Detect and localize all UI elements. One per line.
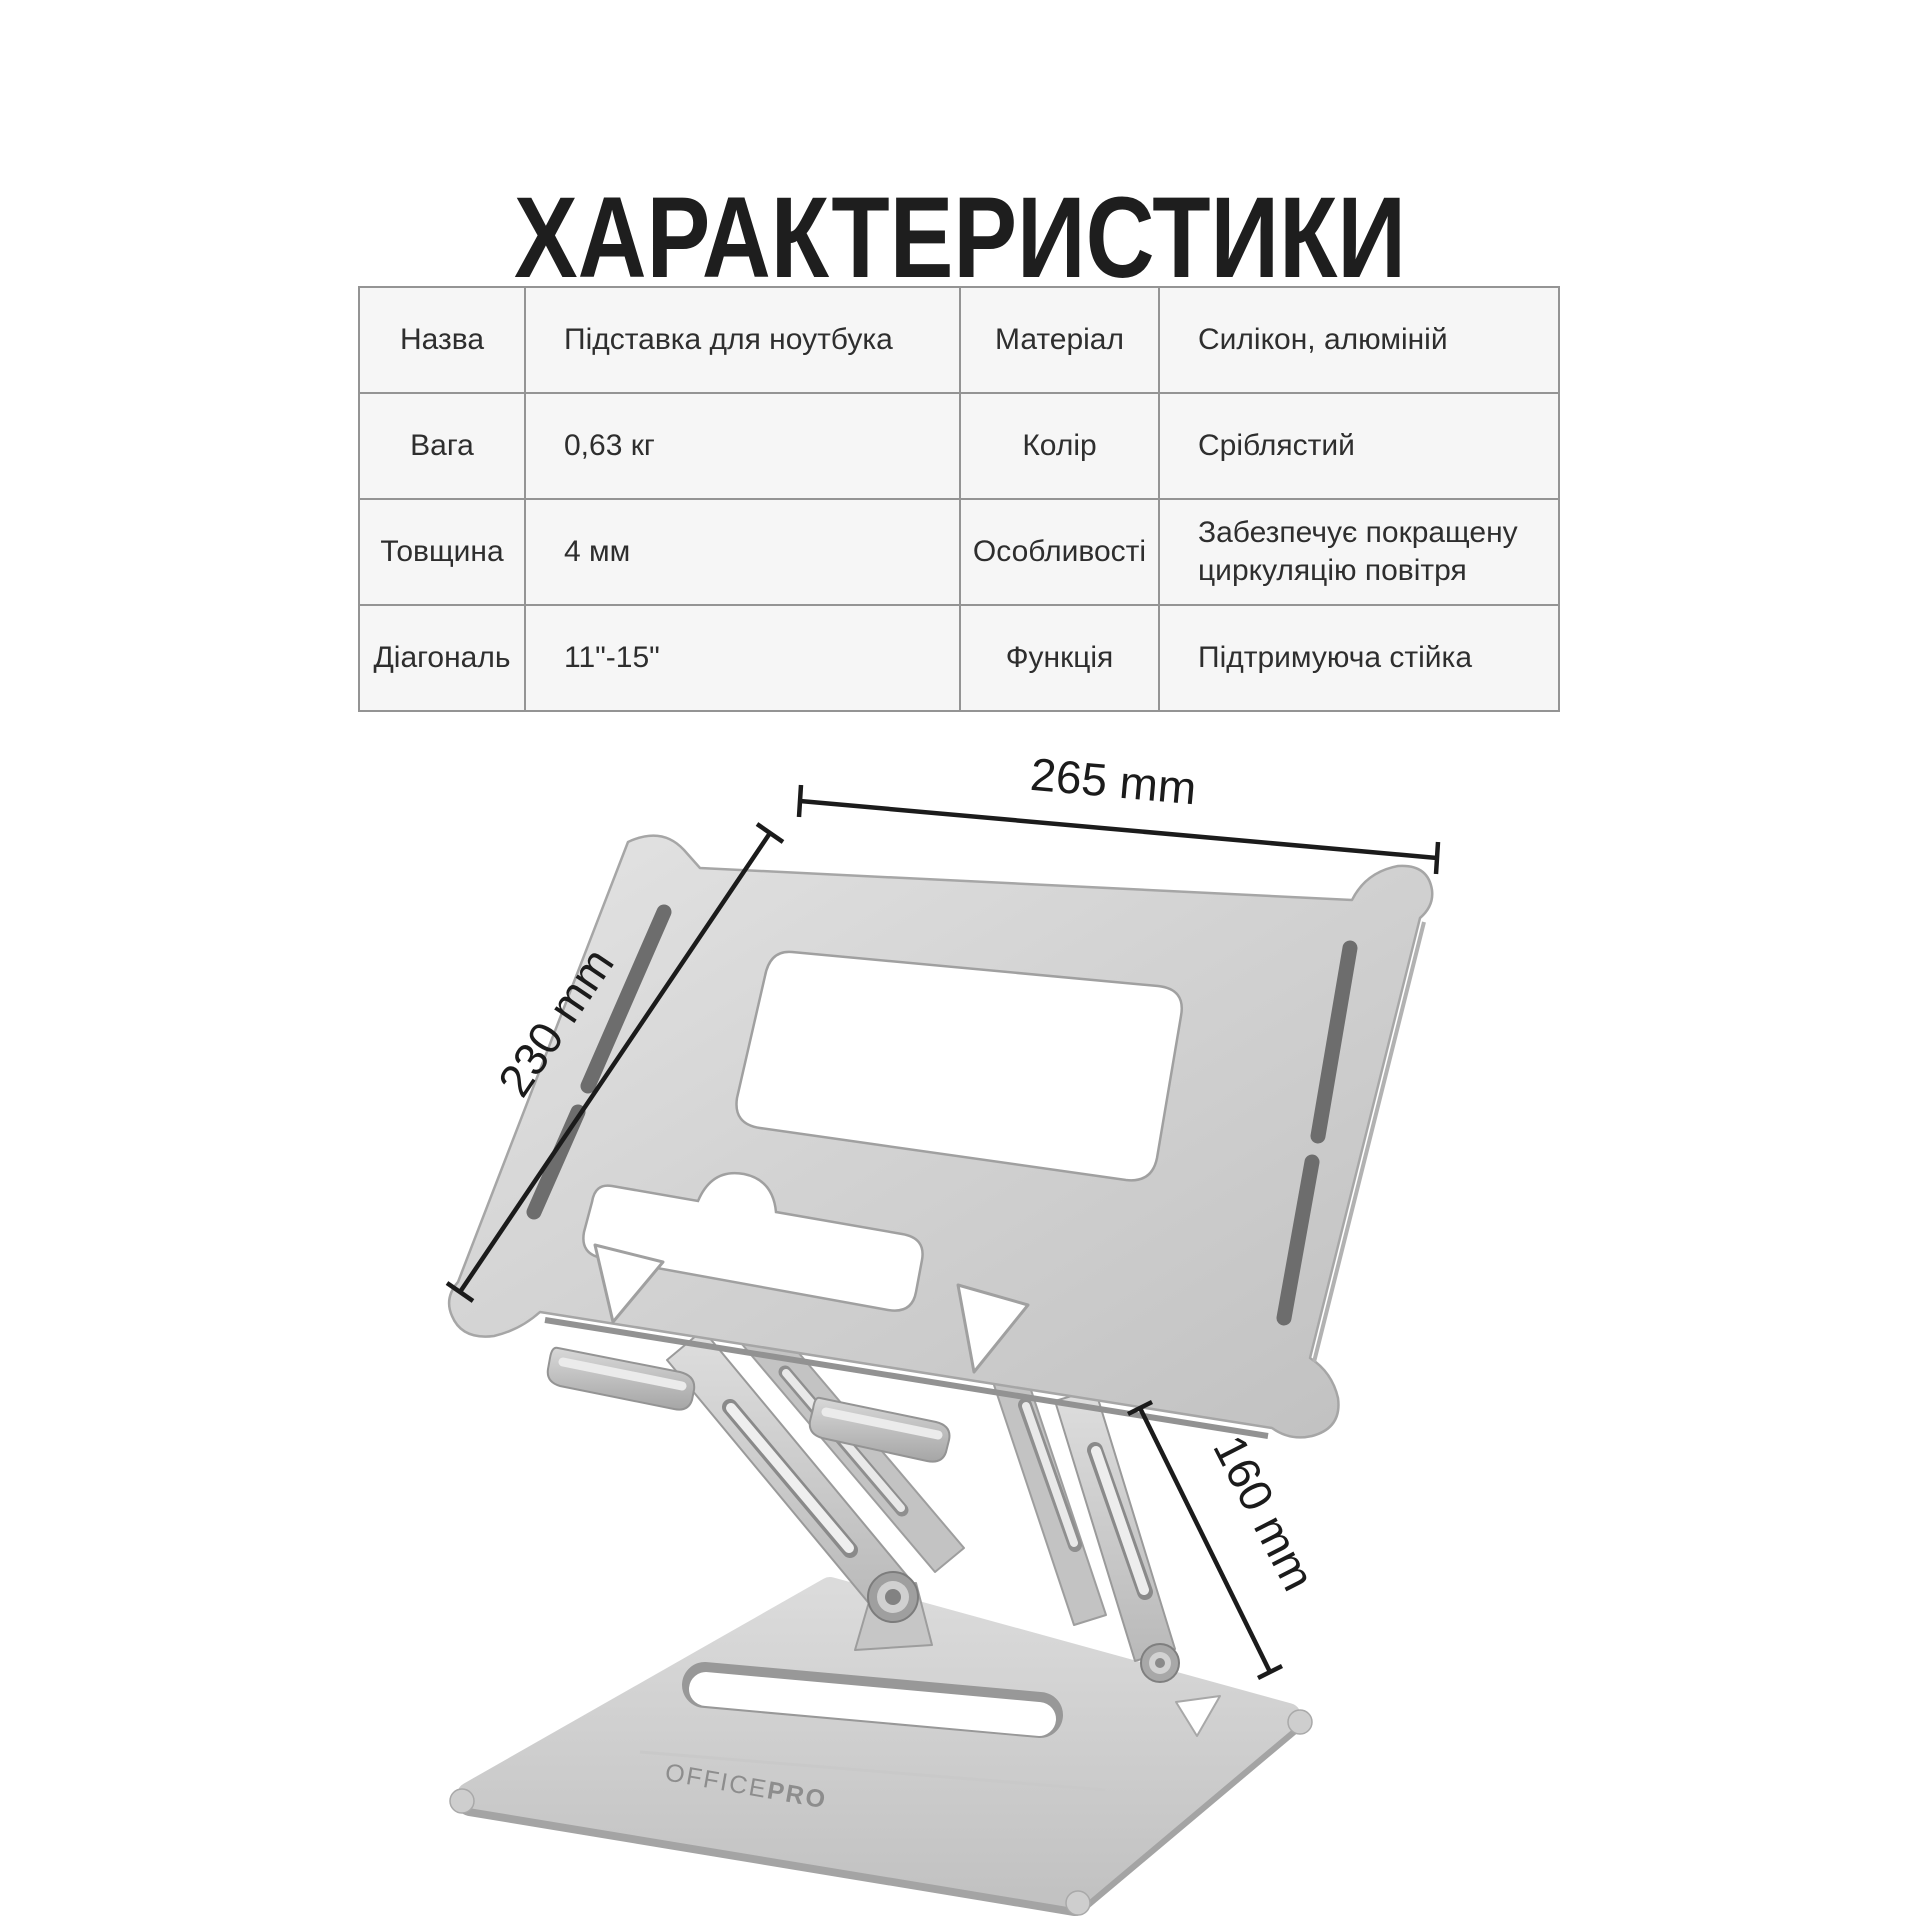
product-diagram: OFFICEPRO	[0, 0, 1920, 1920]
dim-width-label: 265 mm	[1028, 748, 1198, 815]
base-plate: OFFICEPRO	[450, 1583, 1312, 1915]
base-foot-left	[450, 1789, 474, 1813]
base-foot-right	[1288, 1710, 1312, 1734]
base-foot-front	[1066, 1891, 1090, 1915]
top-plate	[449, 836, 1432, 1438]
